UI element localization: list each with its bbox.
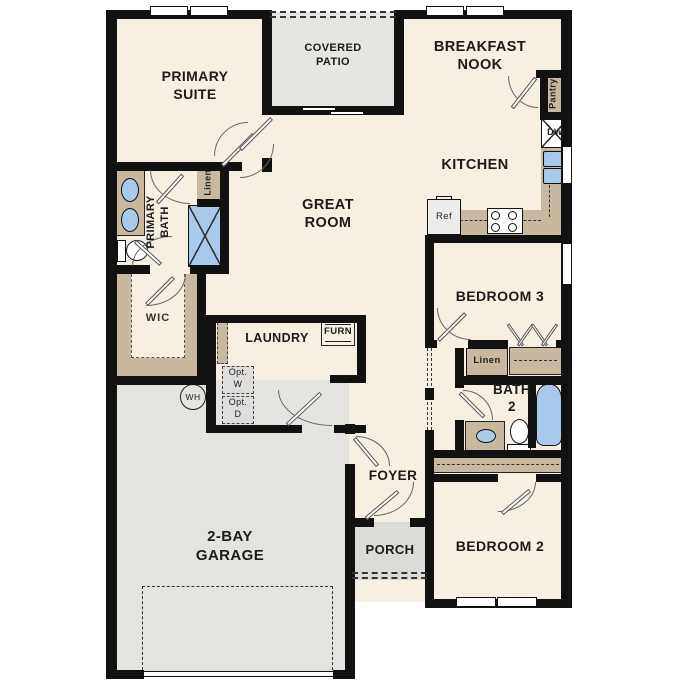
patio-sliding-door-2	[330, 111, 364, 115]
bedroom3-closet-rod	[514, 360, 557, 361]
wall-bath2-bottom	[425, 450, 571, 458]
primary-sink-1	[121, 178, 139, 202]
wall-hall-stub	[425, 388, 434, 400]
window-bedroom2-2	[497, 597, 537, 607]
label-water-heater: WH	[180, 392, 206, 403]
stove-burner-4	[508, 223, 517, 232]
wall-bedroom3-bottom-a	[425, 340, 437, 348]
wall-laundry-left	[206, 315, 216, 433]
bath2-toilet-bowl	[510, 419, 529, 444]
wall-garage-bottom-left	[106, 670, 144, 679]
wall-bedroom3-bottom-b	[468, 340, 508, 348]
wall-linen-primary-bottom	[197, 199, 229, 207]
wall-bath2-left-lower	[455, 420, 464, 452]
label-kitchen: KITCHEN	[420, 156, 530, 174]
wall-bedroom2-top-right	[536, 474, 571, 482]
wall-garage-top	[106, 376, 206, 385]
porch-edge-dash-2	[352, 577, 427, 579]
wall-greatroom-bedrooms	[425, 235, 434, 345]
window-primary-suite-2	[190, 6, 228, 16]
label-primary-bath: PRIMARY BATH	[145, 183, 181, 261]
label-wic: WIC	[140, 312, 176, 326]
wall-laundry-top	[206, 315, 366, 323]
porch-edge-dash-1	[352, 572, 427, 574]
wall-foyer-bottom-right	[410, 518, 434, 527]
wall-bath2-left-upper	[455, 348, 464, 388]
wall-laundry-bottom-right	[334, 425, 366, 433]
label-breakfast-nook: BREAKFAST NOOK	[425, 38, 535, 74]
label-bedroom3: BEDROOM 3	[437, 288, 563, 306]
refrigerator-handle	[436, 196, 452, 200]
label-laundry: LAUNDRY	[237, 331, 317, 347]
primary-toilet-tank	[117, 240, 126, 262]
wall-wic-right	[197, 274, 206, 384]
label-refrigerator: Ref	[427, 211, 461, 223]
patio-edge-dash-1	[270, 11, 396, 13]
hall-opening-dash-3	[427, 402, 428, 430]
label-bedroom2: BEDROOM 2	[437, 538, 563, 556]
wall-linen-primary-right	[220, 162, 229, 274]
hall-opening-dash-4	[431, 402, 432, 430]
label-garage: 2-BAY GARAGE	[180, 528, 280, 566]
window-nook-2	[466, 6, 504, 16]
wall-laundry-right	[357, 315, 366, 381]
label-covered-patio: COVERED PATIO	[295, 42, 371, 70]
laundry-cabinet	[217, 322, 228, 364]
window-bedroom2-1	[456, 597, 496, 607]
wall-nook-left	[394, 10, 404, 112]
bathtub	[536, 384, 562, 446]
label-furnace: FURN	[321, 326, 355, 338]
wall-kitchen-bottom	[425, 235, 571, 243]
wall-foyer-bottom-left	[345, 518, 374, 527]
stove-burner-1	[491, 211, 500, 220]
wall-suite-right	[262, 10, 272, 112]
wall-bath-bottom-left	[106, 265, 150, 274]
window-kitchen	[562, 146, 572, 184]
wall-bedroom2-top-left	[425, 474, 498, 482]
hall-opening-dash-1	[427, 348, 428, 386]
label-opt-dryer: Opt. D	[226, 397, 250, 420]
bedroom3-closet-shelf	[510, 348, 561, 374]
window-nook-1	[426, 6, 464, 16]
furnace-line-bottom	[325, 341, 351, 342]
garage-door-line	[144, 671, 333, 677]
primary-sink-2	[121, 208, 139, 232]
floor-plan: PRIMARY SUITE COVERED PATIO BREAKFAST NO…	[0, 0, 687, 687]
wall-top-left	[106, 10, 272, 19]
hall-opening-dash-2	[431, 348, 432, 386]
stove-burner-3	[491, 223, 500, 232]
wall-bedroom3-bottom-c	[556, 340, 571, 348]
wall-pantry-bottom	[540, 112, 572, 120]
wall-bath-bottom-right	[190, 265, 229, 274]
label-porch: PORCH	[360, 542, 420, 558]
bedroom2-closet-rod	[437, 464, 559, 465]
label-foyer: FOYER	[363, 468, 423, 485]
wall-porch-right	[425, 522, 434, 608]
label-pantry: Pantry	[547, 77, 558, 111]
patio-edge-dash-2	[270, 16, 396, 18]
window-primary-suite-1	[150, 6, 188, 16]
label-linen-hall: Linen	[468, 355, 506, 367]
bath2-sink	[476, 429, 496, 443]
label-bath2: BATH 2	[492, 382, 532, 416]
garage-door-dashed-outline	[142, 586, 333, 670]
window-bedroom3	[562, 243, 572, 285]
furnace-line-top	[325, 324, 351, 325]
label-dishwasher: DW	[541, 127, 569, 138]
label-great-room: GREAT ROOM	[283, 196, 373, 232]
wall-laundry-step	[330, 375, 366, 383]
counter-dash-right	[549, 185, 550, 217]
wall-right-exterior	[561, 10, 572, 608]
label-primary-suite: PRIMARY SUITE	[143, 68, 247, 103]
label-linen-primary: Linen	[202, 168, 213, 198]
primary-shower	[188, 205, 222, 267]
label-opt-washer: Opt. W	[226, 367, 250, 390]
wall-left-exterior	[106, 10, 117, 679]
stove-burner-2	[508, 211, 517, 220]
